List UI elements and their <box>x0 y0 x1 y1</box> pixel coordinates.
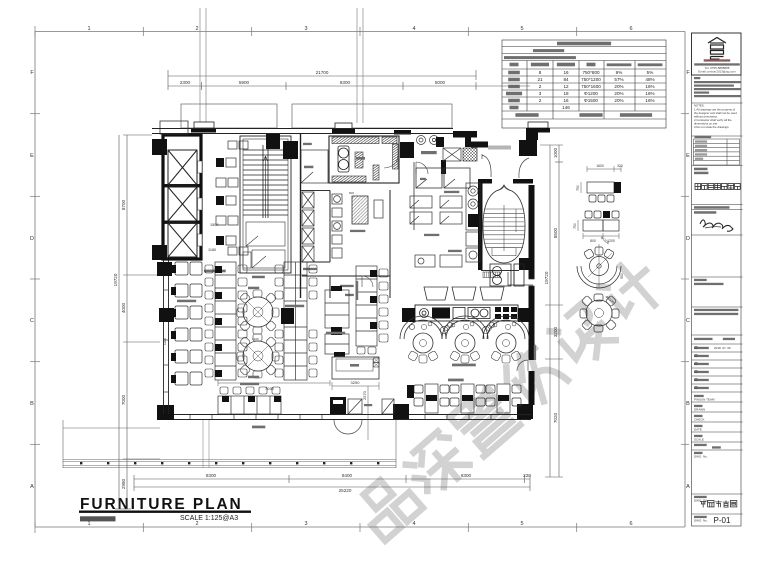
svg-text:3: 3 <box>539 91 542 96</box>
svg-text:5%: 5% <box>647 70 654 75</box>
svg-text:8700: 8700 <box>121 199 126 210</box>
svg-text:5: 5 <box>520 521 523 527</box>
svg-text:4: 4 <box>412 26 415 32</box>
svg-text:PINSUN TEAM: PINSUN TEAM <box>694 398 715 402</box>
svg-text:3200: 3200 <box>553 326 558 337</box>
svg-text:6: 6 <box>629 521 632 527</box>
svg-text:SCALE 1:125@A3: SCALE 1:125@A3 <box>180 515 238 522</box>
svg-text:A: A <box>30 484 34 490</box>
svg-text:320: 320 <box>617 164 623 168</box>
svg-text:F: F <box>686 70 690 76</box>
svg-text:8500: 8500 <box>553 227 558 238</box>
svg-text:2: 2 <box>539 84 542 89</box>
svg-text:8300: 8300 <box>461 473 472 478</box>
svg-text:3: 3 <box>304 521 307 527</box>
svg-text:16%: 16% <box>645 91 654 96</box>
svg-text:750*1600: 750*1600 <box>581 84 601 89</box>
svg-text:16%: 16% <box>645 98 654 103</box>
svg-text:8400: 8400 <box>342 473 353 478</box>
svg-text:3250: 3250 <box>351 380 361 385</box>
svg-text:Φ1200: Φ1200 <box>599 235 610 245</box>
svg-text:3: 3 <box>304 26 307 32</box>
svg-text:Φ1200: Φ1200 <box>584 91 598 96</box>
svg-text:12: 12 <box>563 84 569 89</box>
svg-text:16: 16 <box>563 98 569 103</box>
svg-text:550: 550 <box>620 273 624 279</box>
svg-text:220: 220 <box>523 473 531 478</box>
svg-text:750*1200: 750*1200 <box>581 77 601 82</box>
svg-text:1: 1 <box>87 26 90 32</box>
svg-text:1200: 1200 <box>252 337 259 341</box>
svg-text:FURNITURE PLAN: FURNITURE PLAN <box>80 496 243 513</box>
svg-text:48%: 48% <box>645 77 654 82</box>
svg-text:3.Do not scale the drawings.: 3.Do not scale the drawings. <box>694 125 730 129</box>
svg-text:2570: 2570 <box>362 390 367 400</box>
svg-text:8: 8 <box>539 70 542 75</box>
svg-text:7000: 7000 <box>121 394 126 405</box>
svg-text:7020: 7020 <box>553 412 558 423</box>
svg-text:Email: pinsun2013@qq.com: Email: pinsun2013@qq.com <box>698 70 736 74</box>
svg-text:19720: 19720 <box>544 271 549 284</box>
svg-text:19720: 19720 <box>113 273 118 286</box>
svg-text:4000: 4000 <box>121 302 126 313</box>
svg-text:21700: 21700 <box>316 70 329 75</box>
svg-text:84: 84 <box>563 77 569 82</box>
svg-text:800: 800 <box>590 239 596 243</box>
svg-text:5900: 5900 <box>239 80 250 85</box>
svg-text:E: E <box>30 153 34 159</box>
svg-text:B: B <box>30 401 34 407</box>
svg-text:1200: 1200 <box>163 338 167 345</box>
svg-text:4: 4 <box>412 521 415 527</box>
svg-text:750: 750 <box>573 223 577 229</box>
svg-text:C: C <box>30 318 34 324</box>
svg-text:A: A <box>686 484 690 490</box>
svg-text:B: B <box>686 401 690 407</box>
svg-text:600: 600 <box>349 191 354 195</box>
svg-text:16%: 16% <box>645 84 654 89</box>
svg-text:5000: 5000 <box>435 80 446 85</box>
svg-text:1: 1 <box>87 521 90 527</box>
svg-text:F: F <box>30 70 34 76</box>
svg-text:25220: 25220 <box>339 488 352 493</box>
svg-text:16: 16 <box>563 70 569 75</box>
svg-text:DRAWN: DRAWN <box>694 408 705 412</box>
svg-text:E: E <box>686 153 690 159</box>
svg-text:8300: 8300 <box>340 80 351 85</box>
svg-text:2300: 2300 <box>180 80 191 85</box>
svg-text:2: 2 <box>195 26 198 32</box>
svg-text:1180: 1180 <box>208 248 216 252</box>
svg-text:1500: 1500 <box>210 223 218 227</box>
svg-text:1000: 1000 <box>553 147 558 158</box>
svg-text:20%: 20% <box>614 98 623 103</box>
svg-text:2: 2 <box>539 98 542 103</box>
svg-text:5: 5 <box>520 26 523 32</box>
svg-text:DWG. No.: DWG. No. <box>694 519 708 523</box>
svg-text:20%: 20% <box>614 91 623 96</box>
svg-text:6: 6 <box>629 26 632 32</box>
svg-text:SCALE: SCALE <box>694 438 704 442</box>
svg-text:P-01: P-01 <box>714 516 731 525</box>
svg-text:57%: 57% <box>614 77 623 82</box>
svg-text:146: 146 <box>562 105 570 110</box>
svg-text:C: C <box>686 318 690 324</box>
svg-text:750*800: 750*800 <box>582 70 600 75</box>
svg-text:DWG. No.: DWG. No. <box>694 455 708 459</box>
svg-text:D: D <box>686 236 690 242</box>
svg-text:20%: 20% <box>614 84 623 89</box>
svg-text:2018. 07. 06: 2018. 07. 06 <box>714 346 731 350</box>
svg-text:750: 750 <box>576 185 580 191</box>
svg-text:DATE: DATE <box>694 428 702 432</box>
svg-text:1600: 1600 <box>596 164 604 168</box>
svg-text:2980: 2980 <box>121 478 126 489</box>
svg-text:18: 18 <box>563 91 569 96</box>
svg-text:CHECK: CHECK <box>694 418 705 422</box>
svg-text:Φ1500: Φ1500 <box>584 98 598 103</box>
svg-text:9%: 9% <box>616 70 623 75</box>
svg-text:D: D <box>30 236 34 242</box>
svg-text:8300: 8300 <box>206 473 217 478</box>
svg-text:21: 21 <box>537 77 543 82</box>
